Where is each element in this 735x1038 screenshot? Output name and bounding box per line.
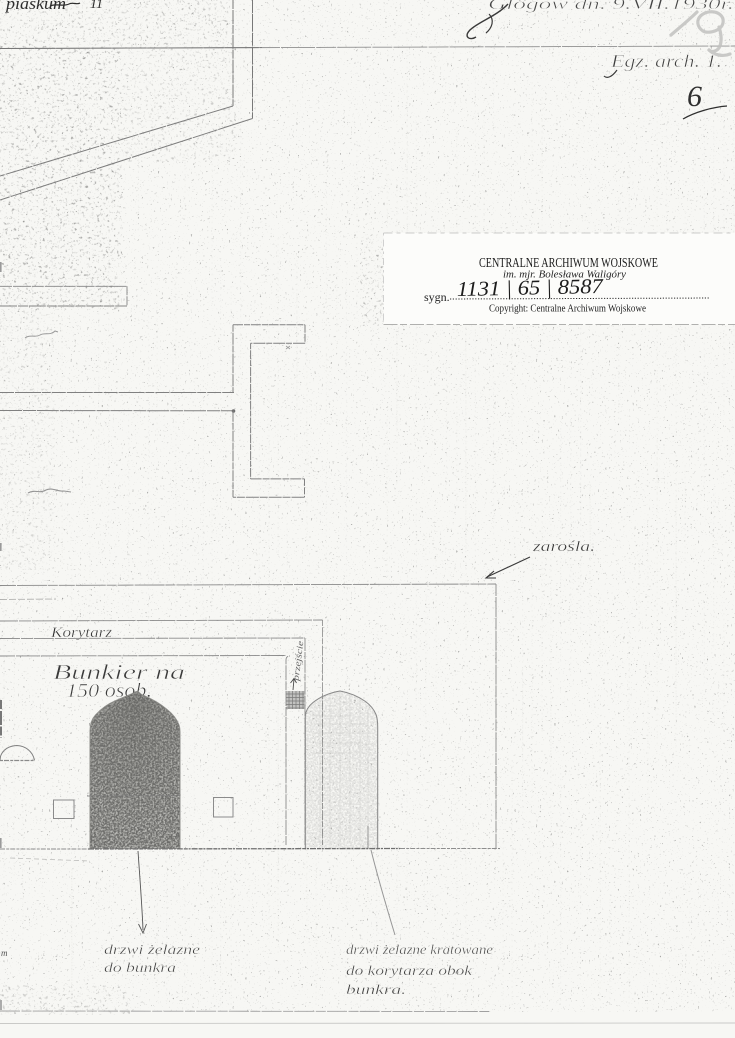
svg-text:Egz. arch. 1.: Egz. arch. 1. <box>610 51 722 71</box>
svg-text:Copyright: Centralne Archiwum: Copyright: Centralne Archiwum Wojskowe <box>489 303 646 315</box>
svg-text:zarośla.: zarośla. <box>532 539 595 555</box>
svg-text:m: m <box>1 948 8 958</box>
svg-text:11: 11 <box>90 0 103 12</box>
svg-text:drzwi żelazne: drzwi żelazne <box>104 943 200 958</box>
svg-text:drzwi żelazne kratowane: drzwi żelazne kratowane <box>346 943 493 958</box>
svg-text:sygn.: sygn. <box>424 290 450 304</box>
svg-text:bunkra.: bunkra. <box>346 983 406 998</box>
svg-text:1131 | 65 | 8587: 1131 | 65 | 8587 <box>457 274 605 301</box>
svg-text:do korytarza obok: do korytarza obok <box>346 964 473 979</box>
svg-text:piaskum: piaskum <box>5 0 66 13</box>
svg-text:do bunkra: do bunkra <box>104 961 176 976</box>
svg-text:6: 6 <box>687 80 702 113</box>
